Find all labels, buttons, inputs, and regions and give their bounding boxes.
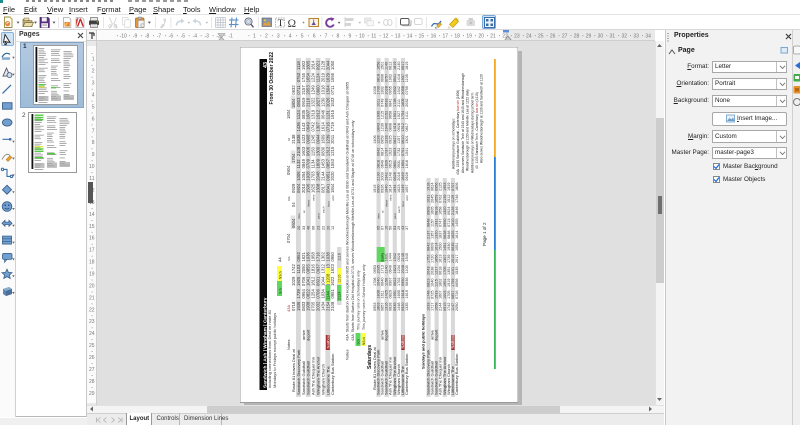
svg-text:1614: 1614	[455, 231, 459, 239]
svg-text:2140: 2140	[396, 62, 400, 70]
svg-text:2050: 2050	[300, 264, 305, 274]
svg-text:0906: 0906	[380, 74, 384, 82]
svg-text:0900: 0900	[376, 185, 380, 193]
svg-text:0830: 0830	[320, 146, 325, 156]
svg-text:1938: 1938	[305, 301, 310, 311]
svg-text:Ω: Ω	[288, 18, 297, 30]
svg-text:mins: mins	[388, 194, 392, 201]
svg-text:2138: 2138	[291, 134, 296, 144]
svg-text:1930: 1930	[446, 243, 450, 251]
svg-text:1307: 1307	[442, 255, 446, 263]
svg-text:13: 13	[395, 33, 401, 39]
svg-text:1031: 1031	[426, 195, 430, 203]
svg-text:Canterbury Bus Station: Canterbury Bus Station	[330, 354, 335, 395]
svg-text:1720: 1720	[430, 255, 434, 263]
svg-text:1739: 1739	[295, 289, 300, 299]
svg-text:2035: 2035	[376, 265, 380, 273]
svg-text:1607: 1607	[438, 291, 442, 299]
svg-text:1700: 1700	[376, 86, 380, 94]
svg-text:1215: 1215	[330, 146, 335, 156]
svg-text:Sandwich Guildhall: Sandwich Guildhall	[300, 361, 305, 395]
svg-text:1936: 1936	[295, 301, 300, 311]
svg-text:32: 32	[622, 33, 628, 39]
svg-text:0718: 0718	[291, 301, 296, 311]
svg-text:1249: 1249	[310, 85, 315, 95]
svg-text:0931: 0931	[396, 160, 400, 168]
svg-text:11: 11	[371, 33, 376, 39]
svg-text:2139: 2139	[442, 195, 446, 203]
svg-text:1951: 1951	[442, 279, 446, 287]
svg-text:1705: 1705	[442, 267, 446, 275]
svg-text:48: 48	[306, 226, 310, 230]
svg-text:0707: 0707	[450, 183, 454, 191]
svg-text:0841: 0841	[388, 98, 392, 106]
svg-text:-10: -10	[120, 33, 127, 39]
svg-text:1816: 1816	[310, 264, 315, 274]
svg-text:2045: 2045	[430, 195, 434, 203]
svg-text:each: each	[396, 206, 400, 213]
svg-text:26: 26	[550, 33, 556, 39]
svg-text:depart: depart	[433, 329, 438, 341]
svg-text:0808: 0808	[388, 123, 392, 131]
svg-text:0919: 0919	[300, 97, 305, 107]
svg-text:1453: 1453	[320, 158, 325, 168]
svg-text:8: 8	[337, 33, 340, 39]
svg-text:37: 37	[405, 226, 409, 230]
svg-text:1230: 1230	[320, 97, 325, 107]
svg-text:0709: 0709	[305, 158, 310, 168]
svg-text:27: 27	[562, 33, 568, 39]
svg-text:43A Starts from Barton Old Ho: 43A Starts from Barton Old Hospital at 0…	[345, 82, 349, 341]
svg-text:0817: 0817	[405, 123, 409, 131]
svg-text:0759: 0759	[405, 86, 409, 94]
svg-text:1806: 1806	[455, 183, 459, 191]
svg-text:Also serves Woodnesborough at: Also serves Woodnesborough at 1139 and S…	[479, 74, 483, 163]
svg-text:1623: 1623	[396, 185, 400, 193]
svg-text:29: 29	[396, 226, 400, 230]
svg-text:1502: 1502	[392, 86, 396, 94]
svg-text:T: T	[278, 19, 284, 29]
svg-text:34: 34	[645, 33, 651, 39]
svg-text:1927: 1927	[396, 111, 400, 119]
svg-text:0954: 0954	[300, 289, 305, 299]
svg-text:1844: 1844	[330, 183, 335, 193]
svg-text:1605: 1605	[430, 207, 434, 215]
svg-text:1512: 1512	[400, 123, 404, 131]
svg-text:1625: 1625	[310, 183, 315, 193]
svg-text:0924: 0924	[295, 183, 300, 193]
svg-text:hour: hour	[326, 201, 330, 207]
svg-text:-1: -1	[228, 33, 233, 39]
svg-text:0753: 0753	[295, 72, 300, 82]
svg-text:Wingham The Anchor: Wingham The Anchor	[315, 356, 320, 395]
svg-text:From 30 October 2022: From 30 October 2022	[269, 52, 275, 105]
svg-text:1224: 1224	[310, 72, 315, 82]
svg-text:2124: 2124	[337, 292, 341, 300]
svg-text:1040: 1040	[430, 279, 434, 287]
svg-text:0944: 0944	[315, 134, 320, 144]
svg-text:1803: 1803	[376, 303, 380, 311]
svg-text:at: at	[301, 210, 305, 213]
svg-text:1658: 1658	[438, 207, 442, 215]
svg-text:1003: 1003	[442, 291, 446, 299]
svg-text:0742: 0742	[310, 122, 315, 132]
svg-text:past: past	[392, 213, 396, 219]
svg-text:43A Starts from Barton Old Ho: 43A Starts from Barton Old Hospital at 0…	[351, 120, 355, 341]
svg-text:1919: 1919	[446, 279, 450, 287]
svg-text:1814: 1814	[310, 60, 315, 70]
svg-text:0904: 0904	[286, 165, 291, 175]
svg-text:1455: 1455	[455, 219, 459, 227]
svg-text:0926: 0926	[380, 185, 384, 193]
svg-text:10: 10	[384, 226, 388, 230]
svg-text:0950: 0950	[330, 252, 335, 262]
svg-text:1050: 1050	[330, 60, 335, 70]
svg-text:1742: 1742	[291, 264, 296, 274]
svg-text:1854: 1854	[400, 160, 404, 168]
svg-text:18: 18	[454, 33, 460, 39]
svg-text:1629: 1629	[384, 160, 388, 168]
svg-text:2026: 2026	[325, 97, 330, 107]
svg-text:0716: 0716	[325, 122, 330, 132]
svg-text:1150: 1150	[384, 278, 388, 286]
svg-text:0900: 0900	[315, 85, 320, 95]
svg-text:2015: 2015	[450, 255, 454, 263]
svg-text:26: 26	[89, 355, 95, 361]
svg-text:1611: 1611	[380, 290, 384, 298]
svg-text:23: 23	[316, 226, 320, 230]
svg-text:1116: 1116	[337, 253, 341, 261]
svg-text:0842: 0842	[426, 243, 430, 251]
svg-text:2048: 2048	[315, 171, 320, 181]
svg-text:1320: 1320	[434, 231, 438, 239]
svg-text:1312: 1312	[320, 264, 325, 274]
svg-text:0747: 0747	[438, 219, 442, 227]
svg-text:0606: 0606	[305, 146, 310, 156]
svg-text:1143: 1143	[300, 122, 305, 132]
svg-text:1157: 1157	[430, 219, 434, 227]
svg-text:2053: 2053	[305, 85, 310, 95]
svg-text:1713: 1713	[380, 265, 384, 273]
svg-text:1351: 1351	[446, 267, 450, 275]
svg-text:1814: 1814	[388, 185, 392, 193]
svg-text:43A 1530 Sandwich Guildhall -: 43A 1530 Sandwich Guildhall - Canterbury…	[456, 90, 460, 175]
svg-text:0833: 0833	[300, 301, 305, 311]
svg-text:1609: 1609	[320, 134, 325, 144]
svg-text:9: 9	[92, 152, 95, 158]
svg-text:1044: 1044	[320, 276, 325, 286]
svg-text:1239: 1239	[325, 134, 330, 144]
svg-text:0636: 0636	[405, 278, 409, 286]
svg-text:arrive: arrive	[300, 329, 305, 340]
svg-text:each: each	[321, 206, 325, 213]
svg-text:24: 24	[526, 33, 532, 39]
svg-text:21: 21	[490, 33, 496, 39]
svg-text:1915: 1915	[330, 109, 335, 119]
svg-text:0711: 0711	[295, 85, 300, 95]
svg-text:0928: 0928	[405, 172, 409, 180]
svg-text:1603: 1603	[300, 146, 305, 156]
svg-text:1115: 1115	[434, 279, 438, 287]
svg-text:1930: 1930	[376, 111, 380, 119]
svg-text:1134: 1134	[310, 159, 315, 169]
svg-text:1512: 1512	[446, 195, 450, 203]
svg-text:0941: 0941	[392, 74, 396, 82]
svg-text:1011: 1011	[376, 99, 380, 107]
svg-text:Sch: Sch	[356, 339, 360, 345]
svg-text:1131: 1131	[325, 110, 330, 120]
svg-text:27: 27	[89, 367, 95, 373]
svg-text:0950: 0950	[400, 278, 404, 286]
svg-text:NSch: NSch	[362, 337, 366, 345]
svg-text:0757: 0757	[384, 74, 388, 82]
svg-text:8: 8	[92, 140, 95, 146]
svg-text:20: 20	[296, 226, 300, 230]
svg-text:Ash The Chequer Inn: Ash The Chequer Inn	[310, 357, 315, 395]
svg-text:2019: 2019	[320, 72, 325, 82]
svg-text:0950: 0950	[442, 219, 446, 227]
svg-text:1742: 1742	[446, 303, 450, 311]
svg-text:3: 3	[277, 33, 280, 39]
svg-text:until: until	[331, 195, 335, 201]
svg-text:0749: 0749	[380, 98, 384, 106]
svg-text:Page 1 of 2: Page 1 of 2	[482, 222, 487, 246]
svg-text:0935: 0935	[392, 303, 396, 311]
svg-text:1018: 1018	[320, 85, 325, 95]
svg-text:0823: 0823	[426, 279, 430, 287]
svg-text:18: 18	[89, 260, 95, 266]
svg-text:0624: 0624	[430, 183, 434, 191]
svg-text:17: 17	[443, 33, 449, 39]
svg-text:0604: 0604	[291, 218, 296, 228]
svg-text:1147: 1147	[450, 303, 454, 311]
svg-text:1105: 1105	[405, 74, 409, 82]
svg-text:2044: 2044	[325, 60, 330, 70]
svg-text:Woodnesborough at 1150 and Mel: Woodnesborough at 1150 and Melville Lea …	[465, 89, 469, 171]
svg-text:-8: -8	[145, 33, 150, 39]
svg-text:these: these	[384, 199, 388, 207]
svg-text:1319: 1319	[310, 109, 315, 119]
svg-text:0632: 0632	[291, 85, 296, 95]
svg-text:past: past	[316, 213, 320, 219]
svg-text:1705: 1705	[446, 291, 450, 299]
svg-text:1703: 1703	[310, 171, 315, 181]
svg-text:1654: 1654	[305, 72, 310, 82]
svg-text:2003: 2003	[380, 172, 384, 180]
svg-text:1041: 1041	[305, 276, 310, 286]
svg-text:2137: 2137	[426, 231, 430, 239]
svg-text:1623: 1623	[392, 265, 396, 273]
svg-text:This journey runs in School Ho: This journey runs in School Holidays onl…	[362, 264, 366, 330]
svg-text:-4: -4	[193, 33, 198, 39]
svg-text:1228: 1228	[384, 135, 388, 143]
svg-text:1902: 1902	[300, 60, 305, 70]
svg-text:1719: 1719	[330, 122, 335, 132]
svg-text:1506: 1506	[305, 183, 310, 193]
svg-text:0956: 0956	[434, 183, 438, 191]
svg-text:Nailbox: Nailbox	[399, 335, 404, 348]
svg-text:0656: 0656	[455, 279, 459, 287]
svg-text:1416: 1416	[396, 74, 400, 82]
svg-text:1101: 1101	[450, 267, 454, 275]
svg-text:10: 10	[89, 164, 95, 170]
svg-text:1607: 1607	[305, 109, 310, 119]
svg-text:1140: 1140	[384, 265, 388, 273]
svg-text:16: 16	[89, 236, 95, 242]
svg-text:1416: 1416	[392, 123, 396, 131]
svg-text:53: 53	[392, 226, 396, 230]
svg-text:0817: 0817	[320, 183, 325, 193]
svg-text:1838: 1838	[295, 134, 300, 144]
svg-text:0640: 0640	[380, 160, 384, 168]
svg-text:until: until	[405, 195, 409, 201]
svg-text:Littlebourne The: Littlebourne The	[325, 365, 330, 395]
svg-text:0702: 0702	[438, 195, 442, 203]
svg-text:1732: 1732	[396, 148, 400, 156]
svg-text:Additional journeys on Wednesd: Additional journeys on Wednesdays during…	[470, 92, 474, 173]
svg-text:1609: 1609	[400, 98, 404, 106]
svg-text:1036: 1036	[305, 252, 310, 262]
svg-text:2058: 2058	[400, 86, 404, 94]
svg-text:1234: 1234	[396, 265, 400, 273]
svg-text:1103: 1103	[295, 264, 300, 274]
svg-text:43: 43	[400, 226, 404, 230]
svg-text:Route 81 leaves Deal at: Route 81 leaves Deal at	[291, 348, 296, 392]
svg-text:0843: 0843	[376, 123, 380, 131]
svg-text:1834: 1834	[286, 109, 291, 119]
svg-text:2010: 2010	[300, 183, 305, 193]
svg-text:0640: 0640	[388, 265, 392, 273]
svg-text:1103: 1103	[405, 265, 409, 273]
svg-text:at: at	[380, 210, 384, 213]
svg-text:1752: 1752	[426, 255, 430, 263]
svg-text:Sch: Sch	[278, 288, 282, 294]
svg-text:1501: 1501	[380, 62, 384, 70]
svg-text:25: 25	[89, 343, 95, 349]
svg-text:2108: 2108	[330, 301, 335, 311]
svg-text:25: 25	[538, 33, 544, 39]
svg-text:1819: 1819	[392, 62, 396, 70]
svg-text:-3: -3	[204, 33, 209, 39]
svg-text:1542: 1542	[392, 253, 396, 261]
svg-text:mins: mins	[311, 194, 315, 201]
svg-text:1: 1	[253, 33, 256, 39]
svg-text:2126: 2126	[450, 207, 454, 215]
svg-text:1411: 1411	[405, 111, 409, 119]
svg-text:1951: 1951	[392, 290, 396, 298]
svg-text:1312: 1312	[325, 146, 330, 156]
svg-text:then: then	[296, 213, 300, 219]
svg-text:Additional journeys on schoold: Additional journeys on schooldays:	[451, 118, 455, 169]
svg-text:these: these	[306, 199, 310, 207]
svg-text:0951: 0951	[330, 289, 335, 299]
svg-text:24: 24	[89, 331, 95, 337]
svg-text:1704: 1704	[291, 153, 296, 163]
svg-text:7: 7	[325, 33, 328, 39]
svg-text:0725: 0725	[430, 291, 434, 299]
svg-text:1805: 1805	[305, 60, 310, 70]
svg-text:1124: 1124	[295, 110, 300, 120]
svg-text:4: 4	[92, 93, 95, 99]
svg-text:1227: 1227	[434, 267, 438, 275]
svg-text:This journey runs on Schoolday: This journey runs on Schooldays only	[356, 270, 360, 330]
svg-text:0909: 0909	[426, 207, 430, 215]
svg-text:1132: 1132	[295, 159, 300, 169]
svg-text:4: 4	[289, 33, 292, 39]
svg-text:1619: 1619	[405, 290, 409, 298]
svg-text:04: 04	[291, 202, 296, 207]
svg-text:Sundays and public holidays: Sundays and public holidays	[420, 313, 425, 369]
svg-text:1746: 1746	[455, 195, 459, 203]
svg-text:1918: 1918	[426, 183, 430, 191]
svg-text:19: 19	[466, 33, 472, 39]
svg-text:1940: 1940	[384, 185, 388, 193]
svg-text:1335: 1335	[405, 303, 409, 311]
svg-text:1533: 1533	[330, 97, 335, 107]
svg-text:1533: 1533	[434, 291, 438, 299]
svg-text:1739: 1739	[446, 255, 450, 263]
svg-text:1953: 1953	[442, 183, 446, 191]
svg-text:1614: 1614	[434, 243, 438, 251]
svg-text:1254: 1254	[310, 289, 315, 299]
svg-text:0828: 0828	[388, 303, 392, 311]
svg-text:0705: 0705	[310, 301, 315, 311]
svg-text:5: 5	[92, 105, 95, 111]
svg-text:1448: 1448	[396, 303, 400, 311]
svg-text:2032: 2032	[315, 301, 320, 311]
svg-text:0925: 0925	[388, 135, 392, 143]
svg-text:including connections from Dea: including connections from Deal on route…	[267, 309, 272, 388]
svg-text:2043: 2043	[426, 267, 430, 275]
svg-text:1239: 1239	[380, 123, 384, 131]
svg-text:1614: 1614	[320, 122, 325, 132]
svg-text:31: 31	[610, 33, 616, 39]
svg-text:1038: 1038	[325, 252, 330, 262]
svg-text:20: 20	[326, 226, 330, 230]
svg-text:1728: 1728	[392, 98, 396, 106]
svg-text:Canterbury Bus Station: Canterbury Bus Station	[404, 354, 409, 395]
svg-text:2130: 2130	[376, 172, 380, 180]
svg-text:1144: 1144	[325, 290, 330, 300]
svg-text:14: 14	[89, 212, 95, 218]
svg-text:2152: 2152	[384, 111, 388, 119]
svg-text:1759: 1759	[450, 279, 454, 287]
svg-text:1501: 1501	[392, 111, 396, 119]
svg-text:0706: 0706	[315, 289, 320, 299]
svg-text:0855: 0855	[305, 264, 310, 274]
svg-text:-9: -9	[133, 33, 138, 39]
svg-text:11: 11	[89, 176, 94, 182]
svg-text:0814: 0814	[380, 148, 384, 156]
svg-text:2144: 2144	[320, 171, 325, 181]
svg-text:0640: 0640	[380, 278, 384, 286]
svg-text:2146: 2146	[400, 253, 404, 261]
svg-text:1623: 1623	[330, 264, 335, 274]
svg-text:1616: 1616	[405, 160, 409, 168]
svg-text:0929: 0929	[291, 183, 296, 193]
svg-text:2148: 2148	[388, 172, 392, 180]
svg-text:0635: 0635	[450, 243, 454, 251]
svg-text:21: 21	[89, 295, 95, 301]
svg-text:28: 28	[574, 33, 580, 39]
svg-text:0628: 0628	[442, 231, 446, 239]
svg-text:1118: 1118	[295, 61, 300, 70]
svg-text:1942: 1942	[384, 172, 388, 180]
svg-text:1556: 1556	[330, 72, 335, 82]
svg-text:1423: 1423	[300, 134, 305, 144]
svg-text:0646: 0646	[320, 109, 325, 119]
svg-text:07: 07	[380, 226, 384, 230]
